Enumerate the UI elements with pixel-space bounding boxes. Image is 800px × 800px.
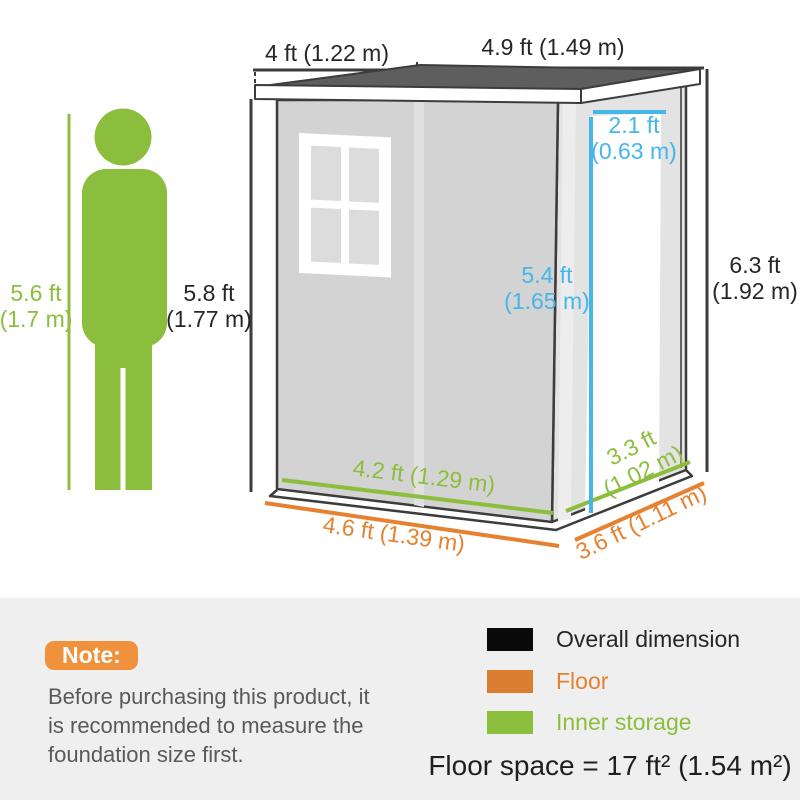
- rear-height-label: 6.3 ft (1.92 m): [712, 252, 798, 304]
- roof-fascia-front: [255, 85, 581, 103]
- roof-depth-label: 4 ft (1.22 m): [265, 40, 389, 66]
- window-pane: [311, 208, 341, 263]
- legend-row-overall: Overall dimension: [487, 627, 740, 651]
- door-height-ft: 5.4 ft: [504, 262, 590, 288]
- front-height-label: 5.8 ft (1.77 m): [166, 280, 252, 332]
- legend-swatch-floor: [487, 670, 533, 693]
- window-pane: [349, 147, 379, 202]
- legend-row-floor: Floor: [487, 669, 608, 693]
- note-line: foundation size first.: [48, 740, 370, 769]
- door-height-label: 5.4 ft (1.65 m): [504, 262, 590, 314]
- person-height-ft: 5.6 ft: [0, 280, 72, 306]
- window-pane: [311, 146, 341, 201]
- shed-dimension-infographic: 4 ft (1.22 m) 4.9 ft (1.49 m) 5.6 ft (1.…: [0, 0, 800, 800]
- front-height-ft: 5.8 ft: [166, 280, 252, 306]
- person-height-m: (1.7 m): [0, 306, 72, 332]
- roof-width-label: 4.9 ft (1.49 m): [481, 34, 624, 60]
- floor-space-text: Floor space = 17 ft² (1.54 m²): [428, 750, 791, 782]
- legend-row-inner: Inner storage: [487, 710, 692, 734]
- legend-label-overall: Overall dimension: [556, 627, 740, 651]
- rear-height-m: (1.92 m): [712, 278, 798, 304]
- legend-label-inner: Inner storage: [556, 710, 692, 734]
- window-pane: [349, 209, 379, 264]
- person-height-label: 5.6 ft (1.7 m): [0, 280, 72, 332]
- door-width-ft: 2.1 ft: [591, 112, 677, 138]
- door-width-label: 2.1 ft (0.63 m): [591, 112, 677, 164]
- note-line: Before purchasing this product, it: [48, 682, 370, 711]
- legend-swatch-inner: [487, 711, 533, 734]
- door-height-m: (1.65 m): [504, 288, 590, 314]
- window: [299, 133, 391, 277]
- note-line: is recommended to measure the: [48, 711, 370, 740]
- note-text: Before purchasing this product, it is re…: [48, 682, 370, 769]
- legend-label-floor: Floor: [556, 669, 608, 693]
- note-badge: Note:: [45, 641, 138, 670]
- person-leg-gap: [121, 368, 126, 490]
- rear-height-ft: 6.3 ft: [712, 252, 798, 278]
- front-height-m: (1.77 m): [166, 306, 252, 332]
- front-wall-seam: [414, 101, 424, 507]
- person-head: [95, 109, 152, 166]
- door-width-m: (0.63 m): [591, 138, 677, 164]
- person-figure: [82, 109, 167, 491]
- legend-swatch-overall: [487, 628, 533, 651]
